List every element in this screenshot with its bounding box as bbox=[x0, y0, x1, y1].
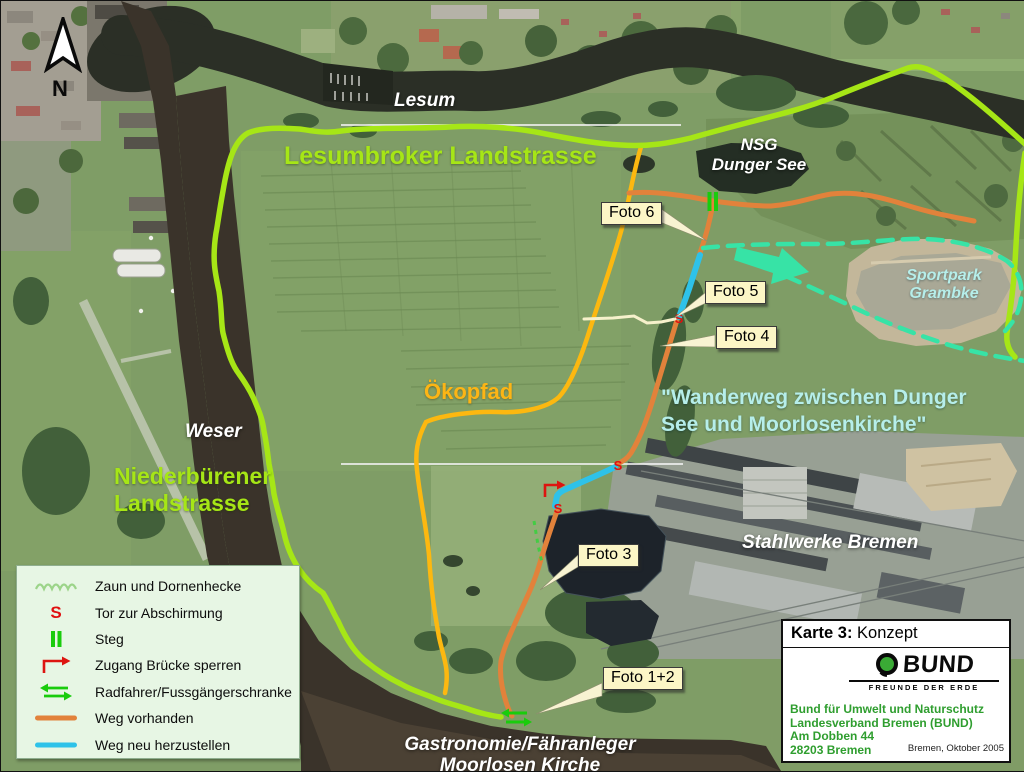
map-card-title: Karte 3: Konzept bbox=[783, 621, 1009, 648]
map-card-number: Karte 3: bbox=[791, 624, 852, 642]
map-card-date: Bremen, Oktober 2005 bbox=[908, 743, 1004, 754]
map-card: Karte 3: Konzept BUND FREUNDE DER ERDE B… bbox=[781, 619, 1011, 763]
label-sportpark-grambke: Sportpark Grambke bbox=[886, 267, 1002, 304]
photo-label-foto6: Foto 6 bbox=[601, 202, 662, 225]
bund-logo-wordmark: BUND bbox=[902, 651, 975, 679]
new-path-icon bbox=[17, 741, 95, 749]
legend-row-existing-path: Weg vorhanden bbox=[17, 705, 299, 731]
north-arrow: N bbox=[41, 17, 85, 102]
label-oekopfad: Ökopfad bbox=[424, 379, 513, 404]
bund-logo: BUND FREUNDE DER ERDE bbox=[849, 651, 999, 692]
gate-marker-s2: S bbox=[614, 458, 623, 473]
north-letter: N bbox=[35, 76, 85, 102]
label-weser: Weser bbox=[185, 421, 242, 443]
legend-box: Zaun und Dornenhecke S Tor zur Abschirmu… bbox=[16, 565, 300, 759]
label-lesum: Lesum bbox=[394, 90, 455, 112]
photo-label-foto3: Foto 3 bbox=[578, 544, 639, 567]
existing-path-icon bbox=[17, 714, 95, 722]
label-nsg-dunger-see: NSG Dunger See bbox=[701, 135, 817, 174]
legend-row-barrier: Radfahrer/Fussgängerschranke bbox=[17, 679, 299, 705]
legend-row-steg: Steg bbox=[17, 626, 299, 652]
bund-logo-icon bbox=[874, 652, 900, 678]
fence-hedge-icon bbox=[17, 578, 95, 594]
photo-label-foto5: Foto 5 bbox=[705, 281, 766, 304]
block-bridge-icon bbox=[17, 655, 95, 675]
label-gastronomie-faehranleger: Gastronomie/Fähranleger Moorlosen Kirche bbox=[379, 734, 661, 772]
legend-row-block-bridge: Zugang Brücke sperren bbox=[17, 652, 299, 678]
label-stahlwerke-bremen: Stahlwerke Bremen bbox=[742, 532, 918, 554]
legend-row-fence: Zaun und Dornenhecke bbox=[17, 573, 299, 599]
label-wanderweg: "Wanderweg zwischen Dunger See und Moorl… bbox=[661, 384, 967, 438]
barrier-arrows-icon bbox=[17, 682, 95, 702]
photo-label-foto4: Foto 4 bbox=[716, 326, 777, 349]
legend-row-new-path: Weg neu herzustellen bbox=[17, 731, 299, 757]
gate-s-icon: S bbox=[17, 603, 95, 623]
footbridge-icon bbox=[17, 629, 95, 649]
label-lesumbroker-landstrasse: Lesumbroker Landstrasse bbox=[284, 142, 597, 171]
photo-label-foto1-2: Foto 1+2 bbox=[603, 667, 683, 690]
map-card-subject: Konzept bbox=[852, 624, 917, 642]
bund-logo-subtitle: FREUNDE DER ERDE bbox=[849, 680, 999, 692]
north-arrow-icon bbox=[43, 17, 83, 73]
map-canvas: S S S N Lesum Lesumbroker Landstrasse NS… bbox=[0, 0, 1024, 772]
label-niederbuerener-landstrasse: Niederbürener Landstrasse bbox=[114, 463, 271, 517]
legend-row-gate: S Tor zur Abschirmung bbox=[17, 599, 299, 625]
gate-marker-s3: S bbox=[554, 501, 563, 516]
